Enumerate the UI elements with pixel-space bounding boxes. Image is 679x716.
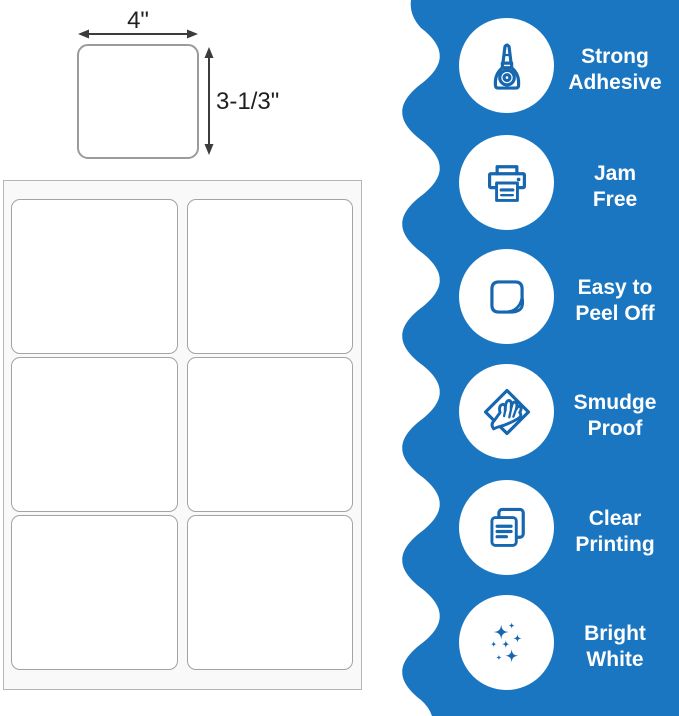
feature-label-line1: Strong xyxy=(558,44,672,70)
feature-item: Bright White xyxy=(459,595,672,690)
feature-item: Clear Printing xyxy=(459,480,672,575)
sparkles-icon xyxy=(478,614,536,672)
feature-label-line2: Printing xyxy=(558,532,672,558)
feature-label-line2: Free xyxy=(558,187,672,213)
feature-label-line2: Proof xyxy=(558,416,672,442)
product-infographic: 4" 3-1/3" xyxy=(0,0,679,716)
feature-list: Strong Adhesive Jam Free xyxy=(0,0,679,716)
feature-label-line1: Jam xyxy=(558,161,672,187)
feature-label: Easy to Peel Off xyxy=(558,275,672,327)
feature-item: Jam Free xyxy=(459,135,672,230)
feature-item: Smudge Proof xyxy=(459,364,672,459)
printer-icon xyxy=(478,154,536,212)
smudge-hand-icon xyxy=(478,383,536,441)
feature-label-line2: White xyxy=(558,647,672,673)
feature-label-line1: Smudge xyxy=(558,390,672,416)
feature-label-line2: Adhesive xyxy=(558,70,672,96)
feature-icon-circle xyxy=(459,364,554,459)
feature-icon-circle xyxy=(459,595,554,690)
feature-label-line1: Bright xyxy=(558,621,672,647)
glue-bottle-icon xyxy=(478,37,536,95)
feature-item: Strong Adhesive xyxy=(459,18,672,113)
feature-icon-circle xyxy=(459,18,554,113)
feature-label-line1: Easy to xyxy=(558,275,672,301)
feature-label: Smudge Proof xyxy=(558,390,672,442)
documents-icon xyxy=(478,499,536,557)
feature-label: Clear Printing xyxy=(558,506,672,558)
feature-label-line1: Clear xyxy=(558,506,672,532)
peel-sticker-icon xyxy=(478,268,536,326)
feature-label: Jam Free xyxy=(558,161,672,213)
feature-icon-circle xyxy=(459,249,554,344)
feature-icon-circle xyxy=(459,135,554,230)
feature-item: Easy to Peel Off xyxy=(459,249,672,344)
feature-label: Strong Adhesive xyxy=(558,44,672,96)
feature-icon-circle xyxy=(459,480,554,575)
feature-label: Bright White xyxy=(558,621,672,673)
feature-label-line2: Peel Off xyxy=(558,301,672,327)
